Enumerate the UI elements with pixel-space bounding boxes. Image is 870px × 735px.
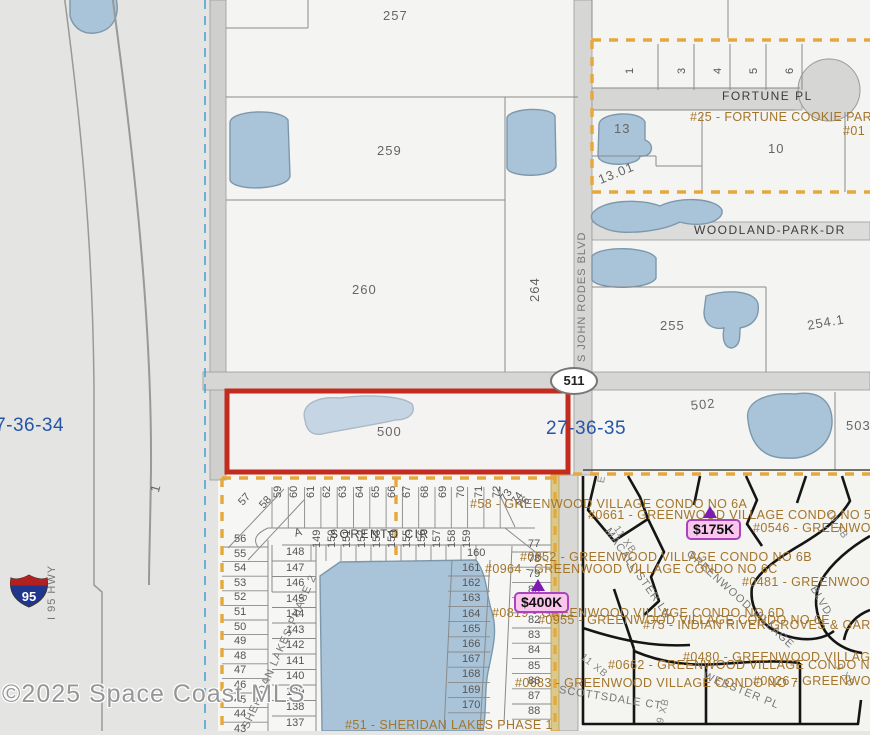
highlight-parcel-500[interactable] <box>227 391 568 472</box>
lake-502 <box>748 393 832 458</box>
road-west-band <box>210 0 226 480</box>
price-tag-175k[interactable]: $175K <box>686 519 741 540</box>
house-icon-400k <box>531 579 545 591</box>
road-fortune-pl <box>592 88 802 110</box>
lake-parcel-264 <box>507 109 556 175</box>
i95-corridor-bg <box>0 0 226 731</box>
road-s-john-rodes <box>574 0 592 475</box>
house-icon-175k <box>703 506 717 518</box>
price-tag-400k[interactable]: $400K <box>514 592 569 613</box>
lake-fortune <box>598 114 651 164</box>
copyright-watermark: ©2025 Space Coast MLS <box>2 680 305 709</box>
interstate-95-shield: 95 <box>8 572 50 614</box>
route-511-shield: 511 <box>550 367 598 395</box>
lake-parcel-259 <box>230 112 290 188</box>
parcel-map-canvas[interactable] <box>0 0 870 731</box>
lake-255-west <box>592 249 656 288</box>
i95-shield-band <box>10 575 47 586</box>
main-parcels-bg <box>226 0 578 375</box>
i95-shield-number: 95 <box>22 589 36 604</box>
road-511 <box>203 372 870 390</box>
map-viewport[interactable]: { "map": { "copyright": "©2025 Space Coa… <box>0 0 870 731</box>
fortune-cul-de-sac <box>798 59 860 121</box>
lake-sheridan <box>320 560 495 731</box>
